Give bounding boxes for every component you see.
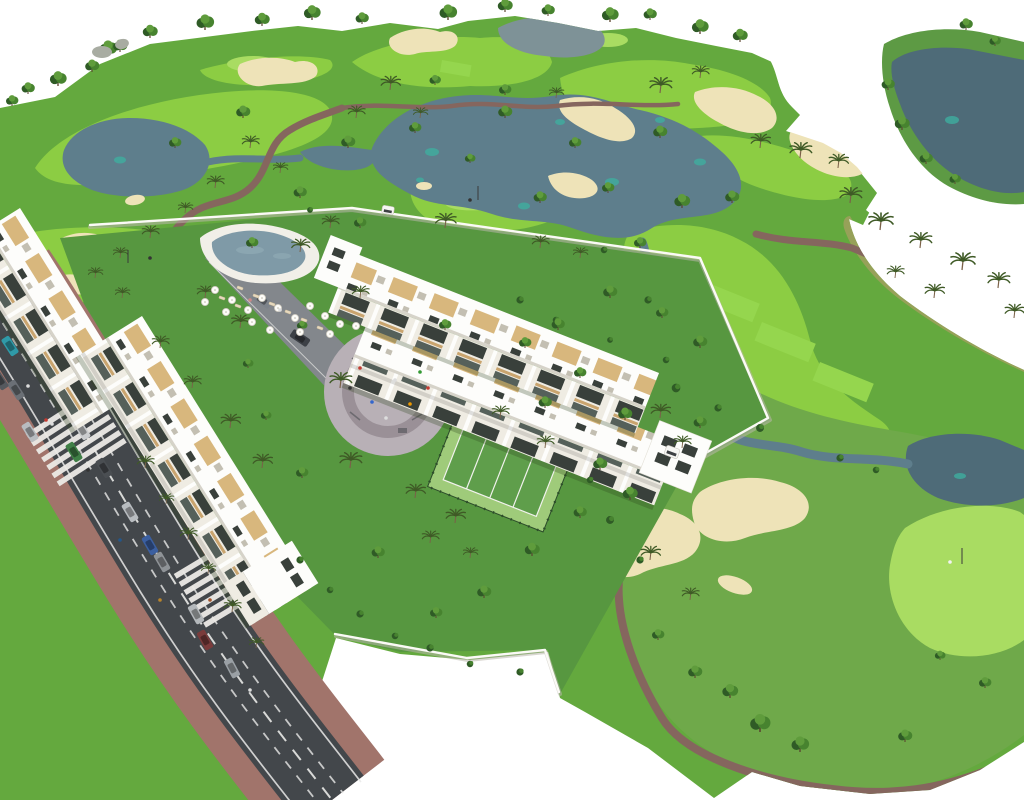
shallow-water-patch xyxy=(945,116,959,124)
bush xyxy=(296,556,303,563)
pool-umbrella xyxy=(321,312,328,319)
person xyxy=(358,366,362,370)
bush xyxy=(516,668,523,675)
shallow-water-patch xyxy=(694,159,706,166)
shallow-water-patch xyxy=(518,203,530,210)
golf-cart xyxy=(381,205,394,215)
bush xyxy=(672,384,681,393)
shallow-water-patch xyxy=(416,178,424,183)
bush xyxy=(601,247,607,253)
bush xyxy=(307,207,313,213)
pool-umbrella xyxy=(211,286,218,293)
bush xyxy=(836,454,843,461)
person xyxy=(948,560,952,564)
pool-umbrella xyxy=(248,318,255,325)
person xyxy=(248,688,252,692)
pool-umbrella xyxy=(228,296,235,303)
person xyxy=(44,418,48,422)
pool-umbrella xyxy=(296,328,303,335)
pool-umbrella xyxy=(266,326,273,333)
person xyxy=(370,400,374,404)
shallow-water-patch xyxy=(425,148,439,156)
person xyxy=(86,468,90,472)
aerial-render-canvas xyxy=(0,0,1024,800)
bush xyxy=(327,587,333,593)
person xyxy=(50,422,54,426)
pool-umbrella xyxy=(244,306,251,313)
person xyxy=(408,402,412,406)
bush xyxy=(426,644,433,651)
bush xyxy=(467,661,473,667)
shallow-water-patch xyxy=(114,157,126,164)
bush xyxy=(636,556,643,563)
person xyxy=(208,598,212,602)
bush xyxy=(644,296,651,303)
bush xyxy=(392,633,398,639)
person xyxy=(468,198,472,202)
person xyxy=(426,386,430,390)
bush xyxy=(516,296,523,303)
pool-umbrella xyxy=(222,308,229,315)
bush xyxy=(587,477,593,483)
bush xyxy=(873,467,879,473)
pool-umbrella xyxy=(306,302,313,309)
pool-umbrella xyxy=(291,314,298,321)
person xyxy=(384,416,388,420)
pool-umbrella xyxy=(201,298,208,305)
person xyxy=(158,598,162,602)
shallow-water-patch xyxy=(555,119,565,125)
pool-umbrella xyxy=(336,320,343,327)
bush xyxy=(663,357,669,363)
bush xyxy=(714,404,721,411)
person xyxy=(118,538,122,542)
person xyxy=(348,386,352,390)
pool-umbrella xyxy=(258,294,265,301)
person xyxy=(393,378,397,382)
bush xyxy=(756,424,764,432)
person xyxy=(248,298,252,302)
pool-umbrella xyxy=(352,322,359,329)
golf-resort-render xyxy=(0,0,1024,800)
person xyxy=(26,384,30,388)
bush xyxy=(356,610,363,617)
shallow-water-patch xyxy=(655,117,665,123)
person xyxy=(278,308,282,312)
shallow-water-patch xyxy=(954,473,966,479)
bush xyxy=(607,337,613,343)
pool-umbrella xyxy=(326,330,333,337)
bush xyxy=(606,516,614,524)
person xyxy=(148,256,152,260)
person xyxy=(418,370,422,374)
